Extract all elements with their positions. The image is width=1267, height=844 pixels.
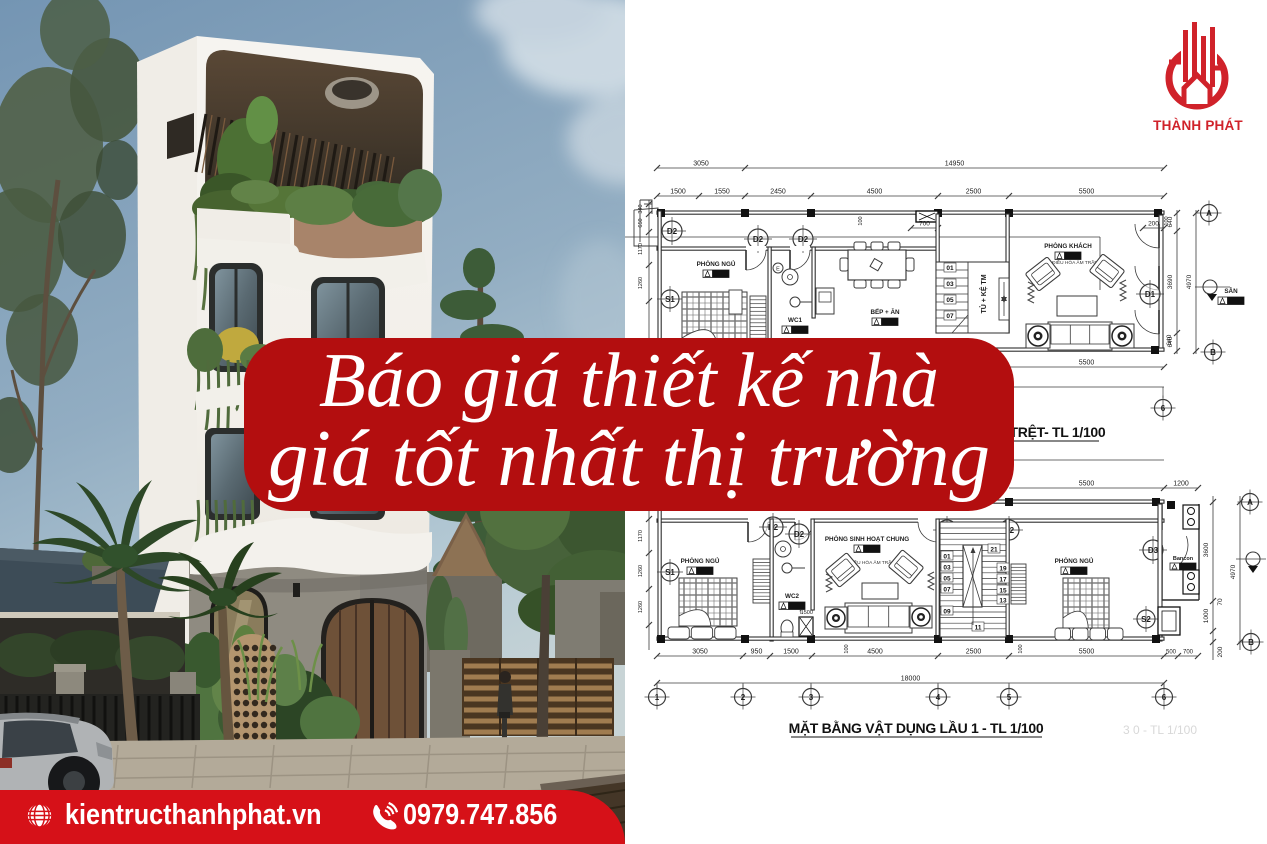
svg-text:3600: 3600 bbox=[1203, 542, 1210, 557]
svg-text:E: E bbox=[776, 267, 780, 273]
svg-text:2450: 2450 bbox=[770, 189, 786, 196]
svg-text:100: 100 bbox=[1018, 644, 1024, 653]
svg-text:2500: 2500 bbox=[966, 649, 982, 656]
svg-text:640: 640 bbox=[1166, 334, 1173, 345]
svg-text:3050: 3050 bbox=[693, 161, 709, 168]
svg-text:700: 700 bbox=[1183, 650, 1194, 656]
svg-text:S1: S1 bbox=[665, 568, 675, 577]
svg-text:18000: 18000 bbox=[901, 676, 921, 683]
svg-text:3690: 3690 bbox=[1167, 274, 1174, 289]
svg-text:ĐIỀU HÒA ÂM TRẦN: ĐIỀU HÒA ÂM TRẦN bbox=[1052, 259, 1098, 266]
svg-text:05: 05 bbox=[943, 576, 951, 583]
svg-text:D2: D2 bbox=[667, 227, 678, 236]
svg-text:3050: 3050 bbox=[692, 649, 708, 656]
svg-text:21: 21 bbox=[990, 547, 998, 554]
svg-text:03: 03 bbox=[946, 281, 954, 288]
svg-text:PHÒNG NGỦ: PHÒNG NGỦ bbox=[697, 259, 736, 268]
svg-text:03: 03 bbox=[943, 565, 951, 572]
svg-text:500: 500 bbox=[1166, 650, 1177, 656]
svg-text:640: 640 bbox=[1167, 216, 1174, 227]
svg-text:1500: 1500 bbox=[783, 649, 799, 656]
svg-text:1260: 1260 bbox=[638, 601, 644, 613]
svg-text:4970: 4970 bbox=[1186, 274, 1193, 289]
svg-text:4500: 4500 bbox=[867, 649, 883, 656]
svg-text:WC2: WC2 bbox=[785, 593, 799, 600]
svg-text:01: 01 bbox=[946, 265, 954, 272]
svg-text:Bancon: Bancon bbox=[1173, 556, 1194, 562]
svg-text:07: 07 bbox=[946, 313, 954, 320]
svg-text:09: 09 bbox=[943, 609, 951, 616]
svg-text:13: 13 bbox=[999, 598, 1007, 605]
svg-text:200: 200 bbox=[1148, 221, 1159, 228]
svg-text:15: 15 bbox=[999, 588, 1007, 595]
svg-text:6: 6 bbox=[1162, 693, 1167, 702]
svg-text:1260: 1260 bbox=[638, 565, 644, 577]
svg-text:⇅500: ⇅500 bbox=[799, 610, 813, 616]
svg-text:100: 100 bbox=[858, 216, 864, 225]
svg-text:19: 19 bbox=[999, 566, 1007, 573]
svg-text:MẶT BẰNG VẬT DỤNG LẦU 1 - TL 1: MẶT BẰNG VẬT DỤNG LẦU 1 - TL 1/100 bbox=[789, 719, 1044, 736]
svg-text:5500: 5500 bbox=[1079, 481, 1095, 488]
svg-text:70: 70 bbox=[1217, 598, 1224, 606]
svg-text:PHÒNG SINH HOẠT CHUNG: PHÒNG SINH HOẠT CHUNG bbox=[825, 534, 909, 543]
svg-text:07: 07 bbox=[943, 587, 951, 594]
svg-text:PHÒNG NGỦ: PHÒNG NGỦ bbox=[681, 556, 720, 565]
svg-text:D2: D2 bbox=[794, 530, 805, 539]
svg-text:1200: 1200 bbox=[1173, 481, 1189, 488]
svg-text:S1: S1 bbox=[665, 295, 675, 304]
svg-text:1170: 1170 bbox=[638, 530, 644, 542]
svg-text:D2: D2 bbox=[753, 235, 764, 244]
svg-text:1: 1 bbox=[655, 693, 660, 702]
svg-text:5500: 5500 bbox=[1079, 649, 1095, 656]
svg-text:950: 950 bbox=[751, 649, 763, 656]
svg-text:2: 2 bbox=[741, 693, 746, 702]
svg-text:2500: 2500 bbox=[966, 189, 982, 196]
svg-text:PHÒNG NGỦ: PHÒNG NGỦ bbox=[1055, 556, 1094, 565]
svg-text:14950: 14950 bbox=[945, 161, 965, 168]
svg-text:5500: 5500 bbox=[1079, 189, 1095, 196]
svg-text:4970: 4970 bbox=[1230, 564, 1237, 579]
svg-text:PHÒNG KHÁCH: PHÒNG KHÁCH bbox=[1044, 241, 1092, 250]
svg-text:100: 100 bbox=[844, 644, 850, 653]
svg-text:B: B bbox=[1248, 638, 1254, 647]
svg-text:650: 650 bbox=[638, 218, 644, 227]
svg-text:1000: 1000 bbox=[1203, 608, 1210, 623]
svg-text:05: 05 bbox=[946, 297, 954, 304]
svg-text:A: A bbox=[1206, 209, 1212, 218]
svg-text:5500: 5500 bbox=[1079, 360, 1095, 367]
svg-text:A: A bbox=[1247, 498, 1253, 507]
svg-text:700: 700 bbox=[919, 221, 930, 228]
svg-text:TỦ + KỆ TM: TỦ + KỆ TM bbox=[979, 274, 988, 313]
svg-text:4500: 4500 bbox=[867, 189, 883, 196]
svg-text:3: 3 bbox=[809, 693, 814, 702]
svg-text:D3: D3 bbox=[1148, 546, 1159, 555]
svg-text:1170: 1170 bbox=[638, 243, 644, 255]
svg-text:1500: 1500 bbox=[670, 189, 686, 196]
svg-text:1260: 1260 bbox=[638, 277, 644, 289]
svg-text:D2: D2 bbox=[798, 235, 809, 244]
svg-text:1550: 1550 bbox=[714, 189, 730, 196]
svg-text:S2: S2 bbox=[1141, 615, 1151, 624]
svg-text:B: B bbox=[1210, 348, 1216, 357]
svg-text:6: 6 bbox=[1161, 404, 1166, 413]
svg-text:5: 5 bbox=[1007, 693, 1012, 702]
svg-text:01: 01 bbox=[943, 554, 951, 561]
svg-text:4: 4 bbox=[936, 693, 941, 702]
svg-text:200: 200 bbox=[1217, 646, 1224, 657]
svg-text:3 0 - TL 1/100: 3 0 - TL 1/100 bbox=[1123, 723, 1197, 737]
svg-text:17: 17 bbox=[999, 577, 1007, 584]
svg-text:D1: D1 bbox=[1145, 290, 1156, 299]
svg-text:WC1: WC1 bbox=[788, 317, 802, 324]
svg-text:11: 11 bbox=[975, 625, 982, 632]
